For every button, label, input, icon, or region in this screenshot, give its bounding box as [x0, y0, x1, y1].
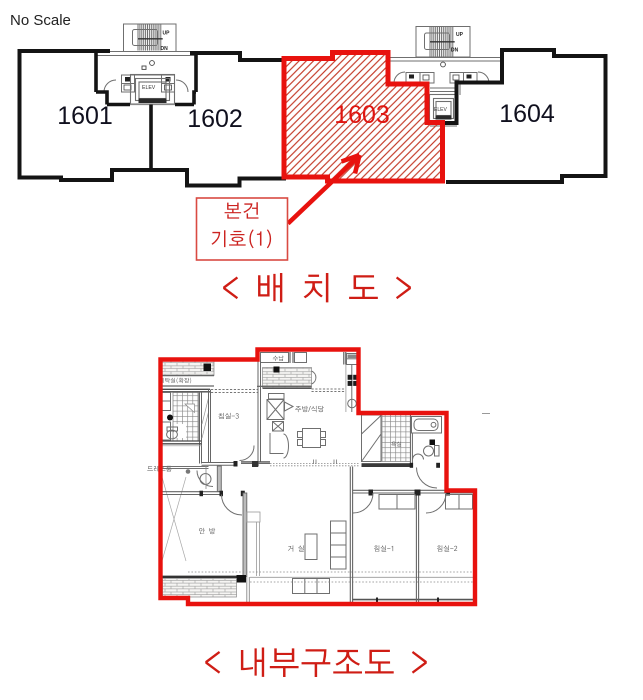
svg-text:UP: UP: [456, 32, 464, 38]
svg-text:1604: 1604: [499, 100, 555, 128]
svg-text:ELEV: ELEV: [434, 107, 447, 113]
svg-text:ELEV: ELEV: [142, 85, 156, 91]
svg-text:No Scale: No Scale: [10, 12, 71, 29]
svg-text:1601: 1601: [57, 102, 113, 130]
svg-text:1603: 1603: [334, 101, 390, 129]
svg-text:UP: UP: [163, 31, 171, 37]
svg-text:1602: 1602: [187, 105, 243, 133]
svg-text:DN: DN: [451, 48, 459, 54]
